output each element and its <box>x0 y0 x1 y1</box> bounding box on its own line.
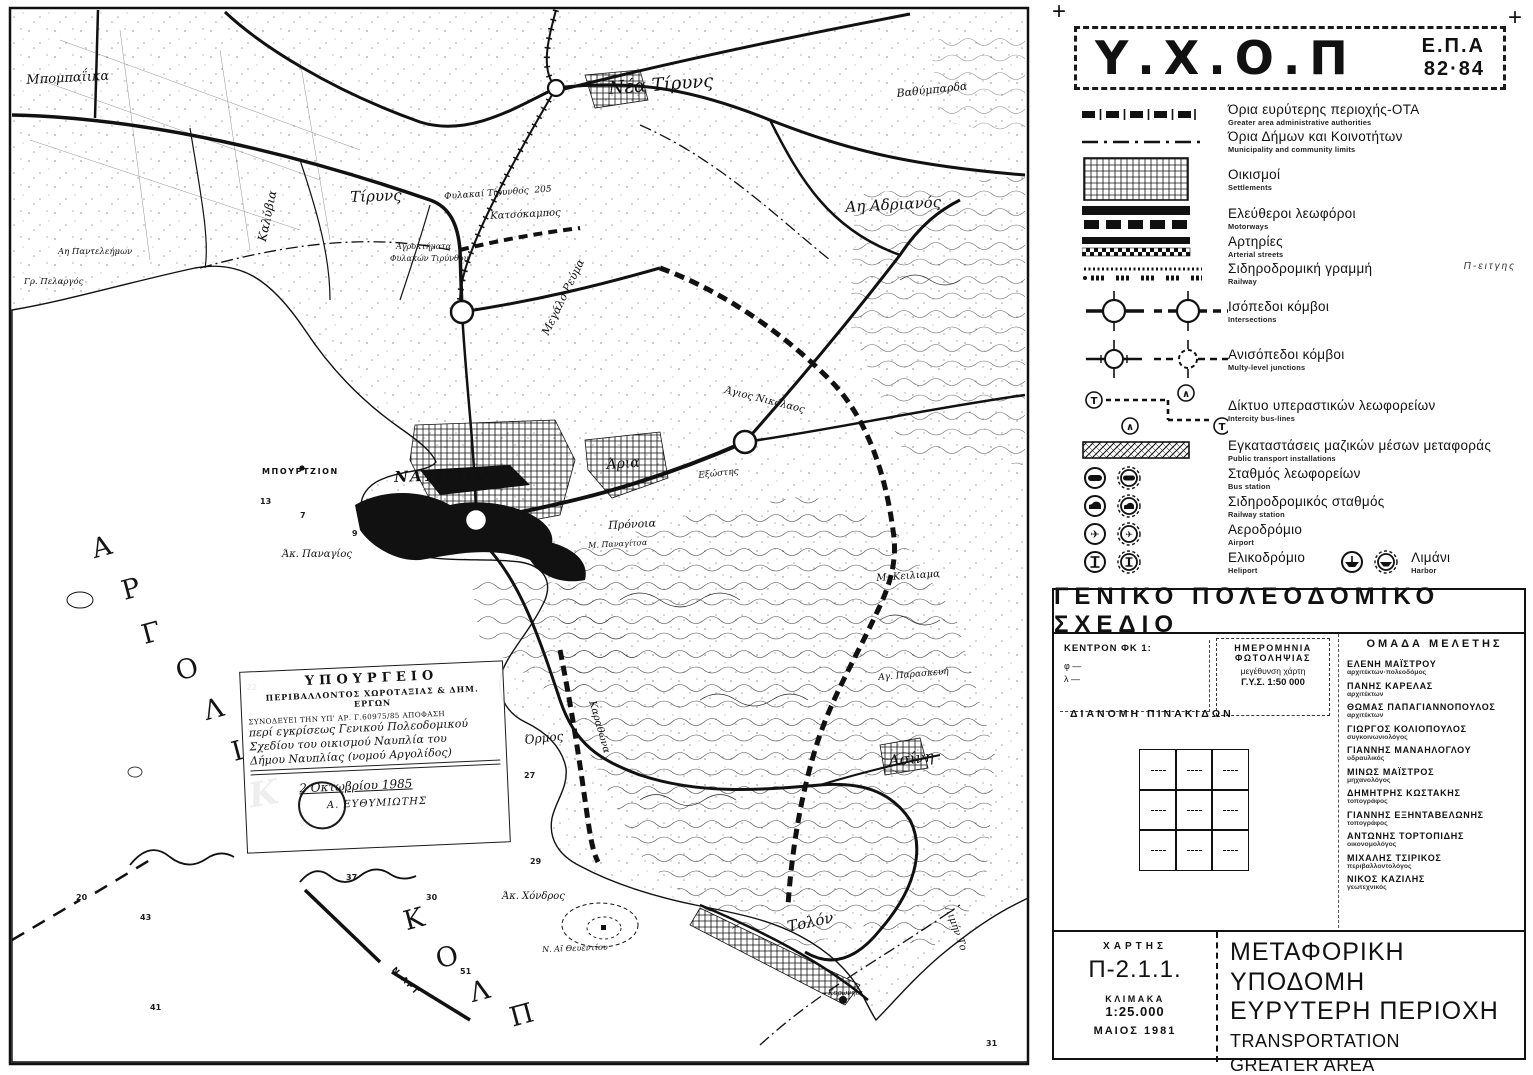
legend-item-intersections: Ισόπεδοι κόμβοι Intersections <box>1078 288 1530 334</box>
grid-cell-mark <box>1223 810 1238 811</box>
page-title: Υ.Χ.Ο.Π <box>1095 31 1357 85</box>
epa-line2: 82·84 <box>1422 58 1485 81</box>
legend-label-gr: Οικισμοί <box>1228 167 1280 182</box>
legend-item-multilevel: Ανισόπεδοι κόμβοι Multy-level junctions <box>1078 336 1530 382</box>
legend-label-en: Motorways <box>1228 222 1356 231</box>
team-member: ΓΙΑΝΝΗΣ ΜΑΝΑΗΛΟΓΛΟΥ υδραυλικός <box>1347 745 1522 762</box>
photo-line3: μεγέθυνση χάρτη <box>1217 666 1329 676</box>
member-name: ΘΩΜΑΣ ΠΑΠΑΓΙΑΝΝΟΠΟΥΛΟΣ <box>1347 702 1522 712</box>
legend-label-en: Heliport <box>1228 566 1305 575</box>
team-member: ΠΑΝΗΣ ΚΑΡΕΛΑΣ αρχιτέκτων <box>1347 681 1522 698</box>
member-name: ΑΝΤΩΝΗΣ ΤΟΡΤΟΠΙΔΗΣ <box>1347 831 1522 841</box>
svg-text:∧: ∧ <box>1182 389 1190 400</box>
legend-symbol <box>1078 109 1228 121</box>
legend-label-en: Railway <box>1228 277 1372 286</box>
multilevel-junction-icon <box>1082 336 1228 382</box>
member-role: μηχανολόγος <box>1347 777 1522 784</box>
grid-cell-mark <box>1151 850 1166 851</box>
legend-label-gr: Σιδηροδρομικός σταθμός <box>1228 494 1385 509</box>
legend-label-gr: Ανισόπεδοι κόμβοι <box>1228 347 1345 362</box>
motorway-icon <box>1082 204 1194 232</box>
legend-label-en: Public transport installations <box>1228 454 1491 463</box>
legend-label-gr: Αρτηρίες <box>1228 234 1283 249</box>
member-role: γεωτεχνικός <box>1347 884 1522 891</box>
title-block: ΧΑΡΤΗΣ Π-2.1.1. ΚΛΙΜΑΚΑ 1:25.000 ΜΑΙΟΣ 1… <box>1054 930 1524 1062</box>
legend-symbol <box>1078 236 1228 258</box>
legend-label-en: Railway station <box>1228 510 1385 519</box>
photo-line4: Γ.Υ.Σ. 1:50 000 <box>1217 677 1329 688</box>
member-name: ΔΗΜΗΤΡΗΣ ΚΩΣΤΑΚΗΣ <box>1347 788 1522 798</box>
legend-label-en: Municipality and community limits <box>1228 145 1403 154</box>
settlements-icon <box>1082 156 1192 202</box>
scale-value: 1:25.000 <box>1054 1004 1216 1019</box>
grid-cell <box>1175 789 1213 831</box>
kentron-line3: λ — <box>1064 674 1205 684</box>
legend-label-gr: Λιμάνι <box>1411 550 1450 565</box>
legend-label-gr: Σιδηροδρομική γραμμή <box>1228 261 1372 276</box>
legend-label-en: Greater area administrative authorities <box>1228 118 1420 127</box>
member-name: ΕΛΕΝΗ ΜΑΪΣΤΡΟΥ <box>1347 659 1522 669</box>
plate-distribution-title: ΔΙΑΝΟΜΗ ΠΙΝΑΚΙΔΩΝ <box>1070 708 1234 720</box>
registration-mark-icon: + <box>1508 6 1522 30</box>
legend-label-gr: Όρια ευρύτερης περιοχής-ΟΤΑ <box>1228 102 1420 117</box>
pt-installations-icon <box>1082 440 1194 462</box>
member-role: υδραυλικός <box>1347 755 1522 762</box>
legend-item-railway-station: Σιδηροδρομικός σταθμός Railway station <box>1078 493 1530 519</box>
member-name: ΜΙΧΑΛΗΣ ΤΣΙΡΙΚΟΣ <box>1347 853 1522 863</box>
legend-symbol <box>1339 549 1411 575</box>
team-title: ΟΜΑΔΑ ΜΕΛΕΤΗΣ <box>1347 638 1522 650</box>
grid-cell-mark <box>1187 810 1202 811</box>
epa-label: Ε.Π.Α 82·84 <box>1422 35 1485 81</box>
grid-cell <box>1139 829 1177 871</box>
kentron-line1: ΚΕΝΤΡΟΝ ΦΚ 1: <box>1064 643 1205 654</box>
member-role: αρχιτέκτων <box>1347 691 1522 698</box>
map-title-en1: TRANSPORTATION <box>1230 1032 1524 1052</box>
legend-label-gr: Ισόπεδοι κόμβοι <box>1228 299 1329 314</box>
grid-cell-mark <box>1223 850 1238 851</box>
team-member: ΔΗΜΗΤΡΗΣ ΚΩΣΤΑΚΗΣ τοπογράφος <box>1347 788 1522 805</box>
page: ΜπομπαΐικαΝέα ΤίρυνςΒαθύμπαρδαΤίρυνςΚαλύ… <box>0 0 1533 1075</box>
legend-item-bus-station: Σταθμός λεωφορείων Bus station <box>1078 465 1530 491</box>
legend-item-arterial: Αρτηρίες Arterial streets <box>1078 234 1530 259</box>
team-member: ΝΙΚΟΣ ΚΑΖΙΛΗΣ γεωτεχνικός <box>1347 874 1522 891</box>
stamp-signer: Α. ΕΥΘΥΜΙΩΤΗΣ <box>252 793 502 815</box>
photo-date-box: ΗΜΕΡΟΜΗΝΙΑ ΦΩΤΟΛΗΨΙΑΣ μεγέθυνση χάρτη Γ.… <box>1216 638 1330 716</box>
airport-icon: ✈ ✈ <box>1082 521 1156 547</box>
member-role: συγκοινωνιολόγος <box>1347 734 1522 741</box>
legend-item-municipal: Όρια Δήμων και Κοινοτήτων Municipality a… <box>1078 129 1530 154</box>
kentron-box: ΚΕΝΤΡΟΝ ΦΚ 1: φ — λ — <box>1060 640 1210 712</box>
legend-symbol <box>1078 465 1228 491</box>
legend-item-airport: ✈ ✈ Αεροδρόμιο Airport <box>1078 521 1530 547</box>
plan-title: ΓΕΝΙΚΟ ΠΟΛΕΟΔΟΜΙΚΟ ΣΧΕΔΙΟ <box>1054 590 1524 634</box>
legend-label-en: Harbor <box>1411 566 1450 575</box>
svg-text:T: T <box>1219 422 1226 433</box>
grid-cell-mark <box>1151 810 1166 811</box>
member-name: ΓΙΑΝΝΗΣ ΜΑΝΑΗΛΟΓΛΟΥ <box>1347 745 1522 755</box>
grid-cell-mark <box>1187 770 1202 771</box>
svg-text:∧: ∧ <box>1126 422 1134 433</box>
member-name: ΠΑΝΗΣ ΚΑΡΕΛΑΣ <box>1347 681 1522 691</box>
team-list: ΕΛΕΝΗ ΜΑΪΣΤΡΟΥ αρχιτέκτων·πολεοδόμος ΠΑΝ… <box>1347 659 1522 891</box>
legend-item-railway: Σιδηροδρομική γραμμή Railway Π-ειτγης <box>1078 261 1530 286</box>
chart-label: ΧΑΡΤΗΣ <box>1054 941 1216 952</box>
grid-cell-mark <box>1187 850 1202 851</box>
member-role: τοπογράφος <box>1347 820 1522 827</box>
epa-line1: Ε.Π.Α <box>1422 35 1485 58</box>
legend-label-gr: Δίκτυο υπεραστικών λεωφορείων <box>1228 398 1436 413</box>
member-role: αρχιτέκτων·πολεοδόμος <box>1347 669 1522 676</box>
legend-label-en: Intercity bus-lines <box>1228 414 1436 423</box>
legend-panel: + + Υ.Χ.Ο.Π Ε.Π.Α 82·84 Όρια ευρύτερης π… <box>1048 0 1533 1075</box>
arterial-icon <box>1082 236 1194 258</box>
legend-symbol <box>1078 204 1228 232</box>
grid-cell <box>1139 749 1177 791</box>
legend-label-gr: Σταθμός λεωφορείων <box>1228 466 1361 481</box>
legend-symbol: T∧∧T <box>1078 384 1228 436</box>
member-name: ΜΙΝΩΣ ΜΑΪΣΤΡΟΣ <box>1347 767 1522 777</box>
legend-symbol <box>1078 265 1228 283</box>
legend-symbol: ✈ ✈ <box>1078 521 1228 547</box>
legend-label-gr: Όρια Δήμων και Κοινοτήτων <box>1228 129 1403 144</box>
member-name: ΝΙΚΟΣ ΚΑΖΙΛΗΣ <box>1347 874 1522 884</box>
legend-symbol <box>1078 440 1228 462</box>
approval-stamp: ΥΠΟΥΡΓΕΙΟ ΠΕΡΙΒΑΛΛΟΝΤΟΣ ΧΩΡΟΤΑΞΙΑΣ & ΔΗΜ… <box>239 660 511 853</box>
grid-cell <box>1139 789 1177 831</box>
legend-label-en: Arterial streets <box>1228 250 1283 259</box>
bus-station-icon <box>1082 465 1156 491</box>
legend-list: Όρια ευρύτερης περιοχής-ΟΤΑ Greater area… <box>1078 102 1530 577</box>
legend-item-motorways: Ελεύθεροι λεωφόροι Motorways <box>1078 204 1530 232</box>
grid-cell-mark <box>1151 770 1166 771</box>
intercity-bus-icon: T∧∧T <box>1082 384 1228 436</box>
chart-number: Π-2.1.1. <box>1054 956 1216 984</box>
grid-cell <box>1175 749 1213 791</box>
legend-symbol <box>1078 156 1228 202</box>
legend-label-en: Settlements <box>1228 183 1280 192</box>
legend-label-en: Intersections <box>1228 315 1329 324</box>
legend-item-settlements: Οικισμοί Settlements <box>1078 156 1530 202</box>
legend-label-gr: Ελεύθεροι λεωφόροι <box>1228 206 1356 221</box>
grid-cell-mark <box>1223 770 1238 771</box>
kentron-line2: φ — <box>1064 661 1205 671</box>
plate-distribution-grid <box>1140 750 1248 870</box>
legend-extra: Λιμάνι Harbor <box>1339 549 1450 575</box>
scale-label: ΚΛΙΜΑΚΑ <box>1054 994 1216 1004</box>
member-role: τοπογράφος <box>1347 798 1522 805</box>
legend-symbol <box>1078 336 1228 382</box>
map-panel: ΜπομπαΐικαΝέα ΤίρυνςΒαθύμπαρδαΤίρυνςΚαλύ… <box>0 0 1040 1075</box>
team-member: ΜΙΝΩΣ ΜΑΪΣΤΡΟΣ μηχανολόγος <box>1347 767 1522 784</box>
member-role: αρχιτέκτων <box>1347 712 1522 719</box>
svg-text:T: T <box>1091 396 1098 407</box>
map-title-en2: GREATER AREA <box>1230 1056 1524 1075</box>
plan-section: ΓΕΝΙΚΟ ΠΟΛΕΟΔΟΜΙΚΟ ΣΧΕΔΙΟ ΚΕΝΤΡΟΝ ΦΚ 1: … <box>1052 588 1526 1060</box>
legend-label-gr: Ελικοδρόμιο <box>1228 550 1305 565</box>
legend-label-en: Multy-level junctions <box>1228 363 1345 372</box>
legend-item-intercity-bus: T∧∧T Δίκτυο υπεραστικών λεωφορείων Inter… <box>1078 384 1530 436</box>
map-title-cell: ΜΕΤΑΦΟΡΙΚΗ ΥΠΟΔΟΜΗ ΕΥΡΥΤΕΡΗ ΠΕΡΙΟΧΗ TRAN… <box>1218 932 1524 1062</box>
member-name: ΓΙΩΡΓΟΣ ΚΟΛΙΟΠΟΥΛΟΣ <box>1347 724 1522 734</box>
title-box: Υ.Χ.Ο.Π Ε.Π.Α 82·84 <box>1074 26 1506 90</box>
photo-line2: ΦΩΤΟΛΗΨΙΑΣ <box>1217 653 1329 663</box>
chart-id-cell: ΧΑΡΤΗΣ Π-2.1.1. ΚΛΙΜΑΚΑ 1:25.000 ΜΑΙΟΣ 1… <box>1054 932 1218 1062</box>
grid-cell <box>1175 829 1213 871</box>
legend-symbol <box>1078 288 1228 334</box>
railway-icon <box>1082 265 1206 283</box>
map-title-gr2: ΕΥΡΥΤΕΡΗ ΠΕΡΙΟΧΗ <box>1230 997 1524 1027</box>
photo-line1: ΗΜΕΡΟΜΗΝΙΑ <box>1217 643 1329 653</box>
grid-cell <box>1211 749 1249 791</box>
heliport-icon <box>1082 549 1156 575</box>
registration-mark-icon: + <box>1052 0 1066 24</box>
team-member: ΓΙΩΡΓΟΣ ΚΟΛΙΟΠΟΥΛΟΣ συγκοινωνιολόγος <box>1347 724 1522 741</box>
railway-station-icon <box>1082 493 1156 519</box>
team-member: ΘΩΜΑΣ ΠΑΠΑΓΙΑΝΝΟΠΟΥΛΟΣ αρχιτέκτων <box>1347 702 1522 719</box>
legend-item-pt-installations: Εγκαταστάσεις μαζικών μέσων μεταφοράς Pu… <box>1078 438 1530 463</box>
study-team: ΟΜΑΔΑ ΜΕΛΕΤΗΣ ΕΛΕΝΗ ΜΑΪΣΤΡΟΥ αρχιτέκτων·… <box>1338 634 1522 928</box>
legend-note: Π-ειτγης <box>1464 261 1530 272</box>
member-name: ΓΙΑΝΝΗΣ ΕΞΗΝΤΑΒΕΛΩΝΗΣ <box>1347 810 1522 820</box>
legend-item-heliport: Ελικοδρόμιο Heliport Λιμάνι Harbor <box>1078 549 1530 575</box>
legend-label-en: Airport <box>1228 538 1302 547</box>
team-member: ΕΛΕΝΗ ΜΑΪΣΤΡΟΥ αρχιτέκτων·πολεοδόμος <box>1347 659 1522 676</box>
grid-cell <box>1211 829 1249 871</box>
legend-label-en: Bus station <box>1228 482 1361 491</box>
team-member: ΑΝΤΩΝΗΣ ΤΟΡΤΟΠΙΔΗΣ οικονομολόγος <box>1347 831 1522 848</box>
harbor-icon <box>1339 549 1411 575</box>
member-role: περιβαλλοντολόγος <box>1347 863 1522 870</box>
legend-label-gr: Εγκαταστάσεις μαζικών μέσων μεταφοράς <box>1228 438 1491 453</box>
legend-label-gr: Αεροδρόμιο <box>1228 522 1302 537</box>
team-member: ΓΙΑΝΝΗΣ ΕΞΗΝΤΑΒΕΛΩΝΗΣ τοπογράφος <box>1347 810 1522 827</box>
map-title-gr1: ΜΕΤΑΦΟΡΙΚΗ ΥΠΟΔΟΜΗ <box>1230 938 1524 997</box>
legend-item-ota: Όρια ευρύτερης περιοχής-ΟΤΑ Greater area… <box>1078 102 1530 127</box>
team-member: ΜΙΧΑΛΗΣ ΤΣΙΡΙΚΟΣ περιβαλλοντολόγος <box>1347 853 1522 870</box>
svg-text:✈: ✈ <box>1125 530 1133 540</box>
svg-text:✈: ✈ <box>1090 529 1099 541</box>
map-date: ΜΑΙΟΣ 1981 <box>1054 1025 1216 1037</box>
boundary-municipal-icon <box>1082 138 1206 146</box>
intersection-icon <box>1082 288 1228 334</box>
boundary-ota-icon <box>1082 109 1206 121</box>
map-artwork <box>0 0 1040 1075</box>
member-role: οικονομολόγος <box>1347 841 1522 848</box>
grid-cell <box>1211 789 1249 831</box>
legend-symbol <box>1078 493 1228 519</box>
legend-symbol <box>1078 138 1228 146</box>
legend-symbol <box>1078 549 1228 575</box>
